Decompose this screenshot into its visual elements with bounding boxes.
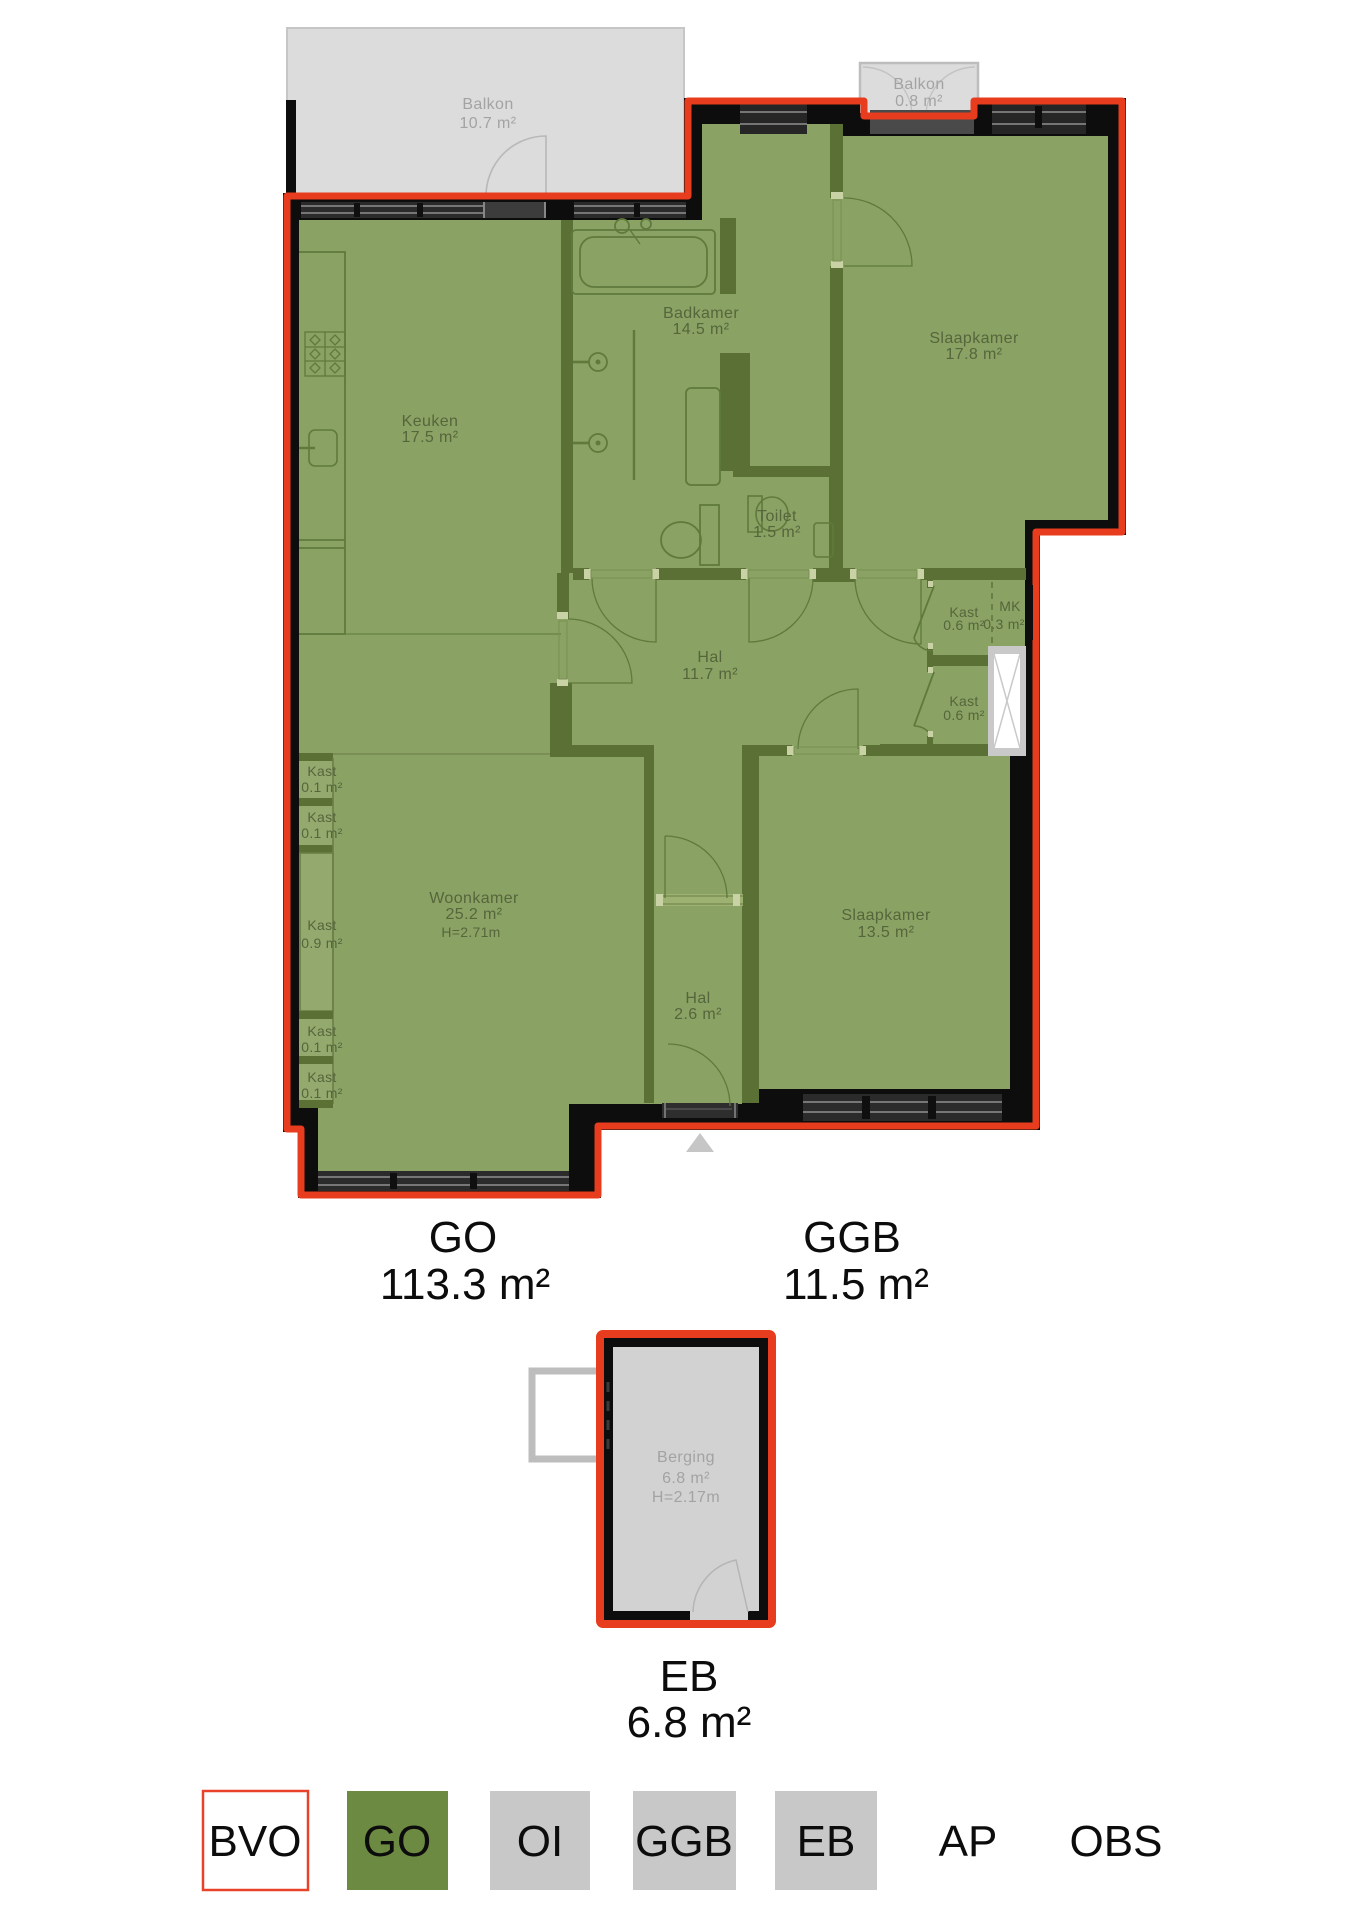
svg-text:0.6 m²: 0.6 m² (943, 707, 985, 723)
svg-text:25.2 m²: 25.2 m² (445, 906, 502, 923)
svg-text:EB: EB (660, 1652, 719, 1701)
svg-text:10.7 m²: 10.7 m² (459, 115, 516, 132)
svg-text:MK: MK (999, 598, 1021, 614)
svg-text:1.5 m²: 1.5 m² (753, 524, 801, 541)
svg-text:Kast: Kast (307, 1069, 336, 1085)
svg-text:H=2.71m: H=2.71m (441, 924, 500, 940)
svg-text:H=2.17m: H=2.17m (652, 1489, 720, 1506)
svg-text:Badkamer: Badkamer (663, 305, 739, 322)
svg-text:GO: GO (363, 1817, 431, 1866)
svg-text:0.9 m²: 0.9 m² (301, 935, 343, 951)
svg-text:13.5 m²: 13.5 m² (857, 924, 914, 941)
svg-text:OBS: OBS (1070, 1817, 1163, 1866)
svg-text:GGB: GGB (803, 1213, 901, 1262)
svg-text:0.1 m²: 0.1 m² (301, 825, 343, 841)
svg-text:Kast: Kast (307, 809, 336, 825)
svg-text:Keuken: Keuken (402, 413, 459, 430)
svg-text:Balkon: Balkon (893, 76, 944, 93)
svg-text:Kast: Kast (307, 917, 336, 933)
svg-text:Hal: Hal (685, 990, 710, 1007)
svg-text:Toilet: Toilet (757, 508, 797, 525)
svg-text:Slaapkamer: Slaapkamer (929, 330, 1019, 347)
svg-text:6.8 m²: 6.8 m² (662, 1470, 710, 1487)
svg-text:BVO: BVO (209, 1817, 302, 1866)
svg-text:GGB: GGB (635, 1817, 733, 1866)
svg-text:EB: EB (797, 1817, 856, 1866)
svg-text:0.1 m²: 0.1 m² (301, 1085, 343, 1101)
svg-text:Kast: Kast (307, 1023, 336, 1039)
svg-text:AP: AP (939, 1817, 998, 1866)
svg-text:0.3 m²: 0.3 m² (983, 616, 1025, 632)
svg-text:113.3 m²: 113.3 m² (380, 1260, 550, 1309)
svg-text:OI: OI (517, 1817, 563, 1866)
svg-text:Berging: Berging (657, 1449, 715, 1466)
svg-text:0.6 m²: 0.6 m² (943, 617, 985, 633)
svg-text:GO: GO (429, 1213, 497, 1262)
svg-text:Balkon: Balkon (462, 96, 513, 113)
svg-text:0.1 m²: 0.1 m² (301, 1039, 343, 1055)
svg-text:14.5 m²: 14.5 m² (672, 321, 729, 338)
svg-text:Slaapkamer: Slaapkamer (841, 907, 931, 924)
svg-text:11.7 m²: 11.7 m² (682, 666, 738, 683)
svg-text:17.5 m²: 17.5 m² (401, 429, 458, 446)
svg-text:Hal: Hal (697, 649, 722, 666)
svg-text:0.1 m²: 0.1 m² (301, 779, 343, 795)
svg-text:17.8 m²: 17.8 m² (945, 346, 1002, 363)
svg-text:Kast: Kast (307, 763, 336, 779)
svg-text:Woonkamer: Woonkamer (429, 890, 519, 907)
svg-text:0.8 m²: 0.8 m² (895, 93, 943, 110)
svg-text:6.8 m²: 6.8 m² (627, 1698, 752, 1747)
svg-text:11.5 m²: 11.5 m² (783, 1260, 929, 1309)
svg-text:2.6 m²: 2.6 m² (674, 1006, 722, 1023)
